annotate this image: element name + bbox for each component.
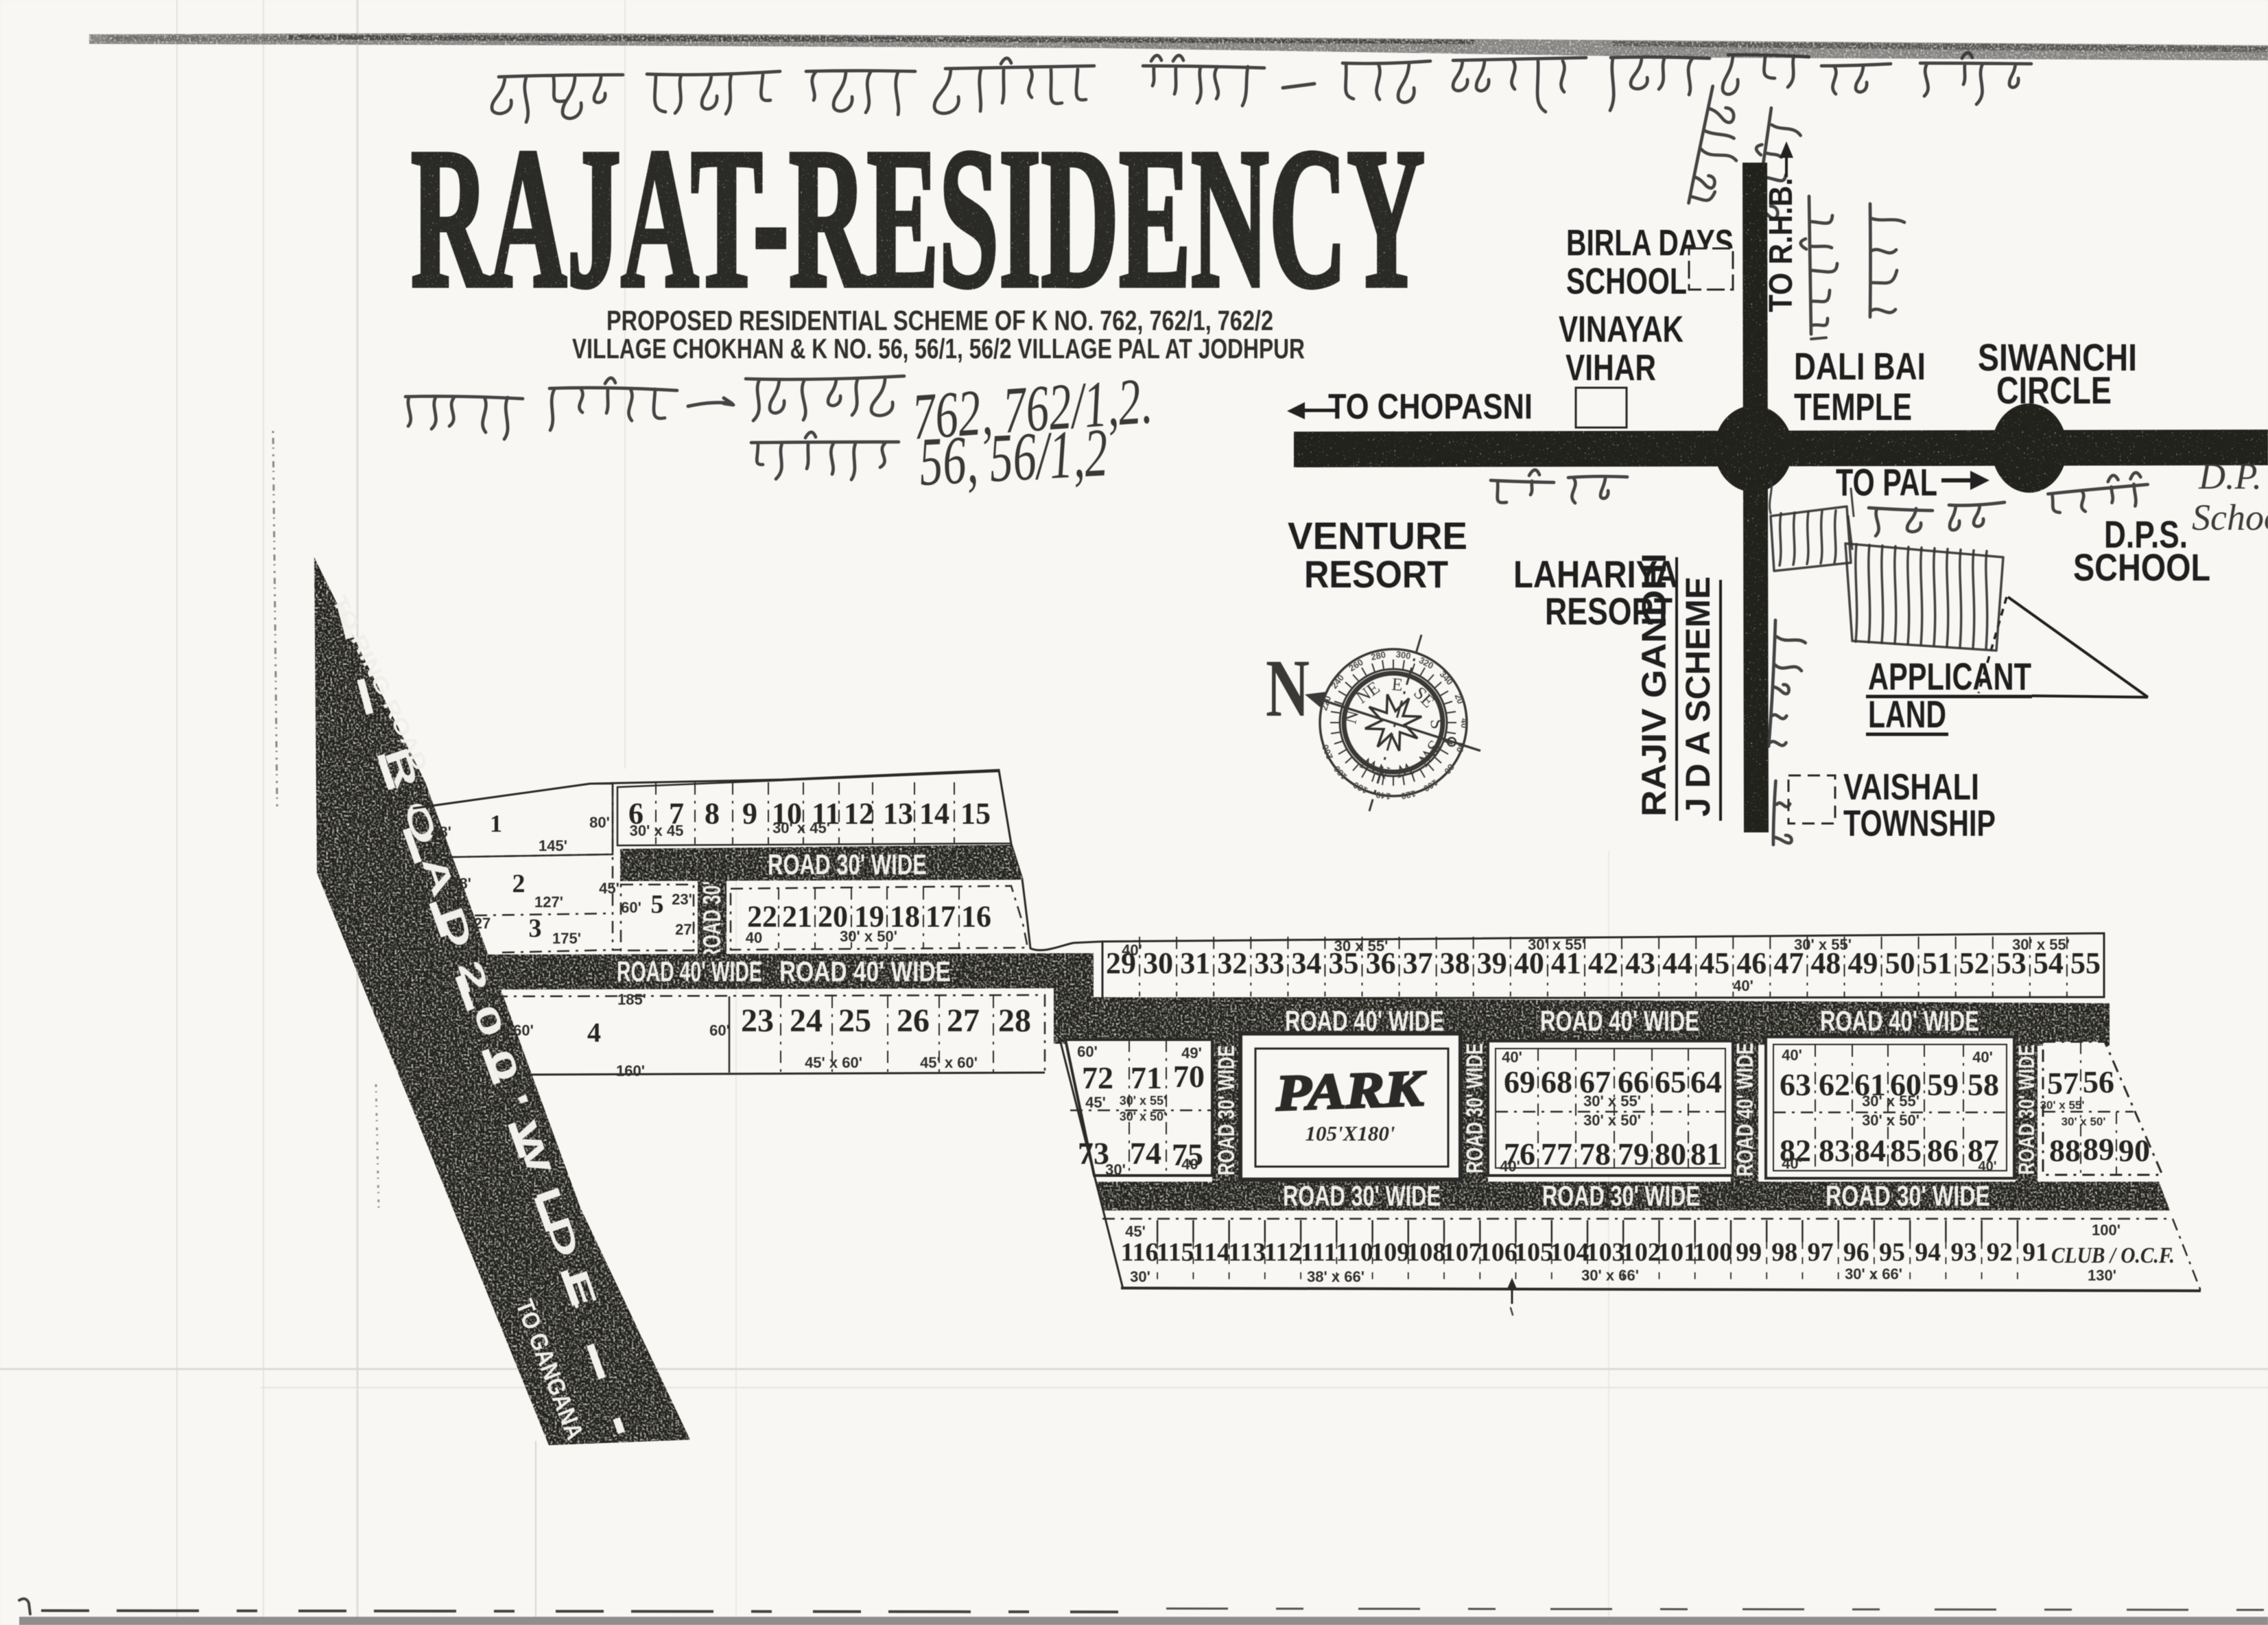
svg-text:49: 49 [1848,946,1878,980]
svg-text:114: 114 [1192,1238,1230,1267]
svg-text:30 x 55': 30 x 55' [1334,937,1389,955]
svg-text:50: 50 [1885,946,1915,980]
svg-text:ROAD 30' WIDE: ROAD 30' WIDE [1826,1180,1990,1212]
svg-text:40': 40' [1733,977,1753,994]
svg-text:60': 60' [1077,1043,1098,1060]
svg-text:DALI BAI: DALI BAI [1794,344,1926,388]
svg-text:38: 38 [1440,946,1470,980]
svg-text:26: 26 [897,1003,930,1039]
svg-text:30' x 50': 30' x 50' [1120,1110,1167,1123]
svg-text:52: 52 [1959,946,1989,980]
svg-text:80': 80' [589,814,610,831]
svg-text:ROAD 40' WIDE: ROAD 40' WIDE [1732,1043,1758,1177]
svg-text:VIHAR: VIHAR [1566,347,1656,388]
svg-text:30' x 55': 30' x 55' [1862,1092,1919,1110]
svg-text:12: 12 [844,797,874,830]
svg-text:15: 15 [960,797,991,830]
svg-text:J D A SCHEME: J D A SCHEME [1679,576,1717,817]
svg-text:TO R.H.B.: TO R.H.B. [1763,178,1799,312]
svg-text:45: 45 [1699,946,1729,980]
svg-text:105: 105 [1514,1238,1553,1267]
svg-text:92: 92 [1987,1238,2013,1267]
svg-text:30' x 55': 30' x 55' [2012,936,2070,953]
svg-text:40': 40' [1978,1159,1996,1174]
svg-text:93: 93 [1951,1238,1977,1267]
svg-text:43: 43 [1625,946,1655,980]
svg-text:13: 13 [883,797,913,830]
svg-text:73: 73 [1078,1136,1109,1171]
svg-text:16: 16 [961,900,991,933]
svg-text:D.P.: D.P. [2198,456,2262,497]
svg-text:25: 25 [838,1003,871,1039]
svg-text:28: 28 [998,1003,1031,1039]
svg-text:58: 58 [1968,1067,1999,1102]
svg-text:145': 145' [539,837,567,854]
svg-text:60': 60' [709,1022,730,1039]
svg-text:81: 81 [1690,1136,1722,1171]
svg-text:ROAD 30' WIDE: ROAD 30' WIDE [1542,1180,1700,1212]
svg-text:ROAD 40' WIDE: ROAD 40' WIDE [1820,1005,1979,1037]
svg-text:31: 31 [1180,946,1210,980]
svg-text:40': 40' [1972,1049,1993,1066]
svg-text:57: 57 [2047,1066,2079,1101]
svg-text:86: 86 [1927,1133,1959,1168]
svg-text:27': 27' [675,921,696,938]
svg-text:102: 102 [1622,1238,1661,1267]
svg-text:40': 40' [1782,1047,1802,1064]
svg-text:30' x 50': 30' x 50' [1862,1112,1919,1129]
svg-text:SCHOOL: SCHOOL [2073,546,2210,589]
svg-text:300: 300 [1395,649,1412,662]
svg-text:ROAD 30' WIDE: ROAD 30' WIDE [2014,1044,2039,1175]
svg-text:110: 110 [1336,1238,1373,1267]
svg-text:30' x 50': 30' x 50' [840,928,897,945]
svg-text:74: 74 [1130,1136,1161,1171]
svg-text:8: 8 [705,797,720,830]
svg-text:49': 49' [1181,1044,1202,1062]
svg-text:30' x 66': 30' x 66' [1845,1265,1902,1283]
svg-text:RAJAT-RESIDENCY: RAJAT-RESIDENCY [411,108,1425,329]
svg-text:62: 62 [1819,1067,1850,1102]
svg-text:ROAD 30': ROAD 30' [698,881,726,961]
svg-text:1: 1 [490,810,502,837]
svg-text:SCHOOL: SCHOOL [1566,261,1687,302]
svg-text:111: 111 [1301,1238,1337,1267]
svg-text:160': 160' [616,1062,645,1079]
svg-text:83: 83 [1819,1133,1850,1168]
svg-text:30: 30 [1143,946,1173,980]
svg-text:30': 30' [1105,1161,1126,1178]
svg-text:3: 3 [529,914,542,943]
svg-text:100': 100' [2092,1221,2121,1239]
svg-text:30' x 55': 30' x 55' [1528,936,1585,953]
svg-text:37: 37 [1403,946,1433,980]
svg-text:116: 116 [1121,1238,1159,1267]
svg-text:48': 48' [431,823,451,841]
svg-text:5: 5 [651,890,664,919]
svg-text:97: 97 [1808,1238,1834,1267]
svg-text:40': 40' [1502,1049,1522,1066]
svg-text:44: 44 [1662,946,1692,980]
svg-text:59: 59 [1927,1067,1959,1102]
svg-text:56: 56 [2083,1064,2114,1099]
svg-text:127': 127' [534,893,563,911]
svg-text:105'X180': 105'X180' [1306,1121,1395,1145]
svg-text:CLUB / O.C.F.: CLUB / O.C.F. [2051,1243,2175,1268]
svg-text:91: 91 [2022,1238,2048,1267]
svg-text:Schoo: Schoo [2192,497,2268,538]
svg-text:ROAD 30' WIDE: ROAD 30' WIDE [768,848,927,880]
svg-text:CIRCLE: CIRCLE [1996,369,2112,412]
svg-text:27: 27 [947,1003,980,1039]
svg-text:69: 69 [1504,1064,1535,1099]
svg-text:115: 115 [1157,1238,1194,1267]
svg-text:TEMPLE: TEMPLE [1794,385,1912,428]
svg-text:45': 45' [1125,1223,1146,1240]
svg-text:VAISHALI: VAISHALI [1843,767,1979,808]
svg-text:71: 71 [1131,1060,1162,1095]
svg-text:45': 45' [599,880,619,897]
svg-text:38' x 66': 38' x 66' [1307,1268,1365,1285]
svg-text:94: 94 [1915,1238,1941,1267]
svg-text:30' x 55': 30' x 55' [1583,1092,1641,1110]
svg-text:TOWNSHIP: TOWNSHIP [1843,803,1996,844]
svg-text:40': 40' [1122,942,1142,959]
svg-text:100: 100 [1693,1238,1732,1267]
svg-text:46: 46 [1736,946,1767,980]
svg-text:42: 42 [1588,946,1618,980]
svg-text:130': 130' [2088,1267,2116,1284]
svg-text:106: 106 [1478,1238,1517,1267]
svg-text:2: 2 [512,869,525,898]
svg-text:ROAD 30' WIDE: ROAD 30' WIDE [1283,1180,1441,1212]
svg-text:95: 95 [1879,1238,1905,1267]
svg-text:17: 17 [925,900,956,933]
svg-text:84: 84 [1854,1133,1886,1168]
svg-text:96: 96 [1843,1238,1869,1267]
svg-text:109: 109 [1371,1238,1410,1267]
svg-text:30': 30' [1130,1268,1150,1285]
svg-text:98: 98 [1771,1238,1797,1267]
svg-text:104: 104 [1550,1238,1589,1267]
svg-text:ROAD 40' WIDE: ROAD 40' WIDE [617,955,762,987]
svg-text:21: 21 [782,900,812,933]
svg-text:LAND: LAND [1868,692,1946,736]
svg-text:55: 55 [2070,946,2101,980]
svg-text:64: 64 [1690,1064,1722,1099]
svg-text:85: 85 [1890,1133,1922,1168]
svg-text:ROAD 30' WIDE: ROAD 30' WIDE [1214,1045,1240,1176]
svg-text:70: 70 [1173,1059,1205,1094]
svg-text:65: 65 [1655,1064,1686,1099]
svg-text:185': 185' [617,991,646,1008]
svg-text:TO CHOPASNI: TO CHOPASNI [1328,387,1533,427]
svg-text:4: 4 [587,1017,601,1048]
svg-text:PARK: PARK [1274,1060,1428,1122]
svg-text:40': 40' [1782,1155,1802,1172]
svg-text:90: 90 [2118,1133,2150,1168]
svg-text:14: 14 [919,797,949,830]
svg-text:88: 88 [2049,1133,2081,1168]
svg-text:30' x 45': 30' x 45' [772,819,830,837]
svg-text:RAJIV GANDHI: RAJIV GANDHI [1635,553,1673,817]
svg-text:72: 72 [1082,1060,1113,1095]
svg-text:ROAD 40' WIDE: ROAD 40' WIDE [1540,1005,1699,1037]
svg-text:9: 9 [742,797,757,830]
svg-text:PROPOSED RESIDENTIAL SCHEME OF: PROPOSED RESIDENTIAL SCHEME OF K NO. 762… [606,305,1273,336]
svg-text:ROAD 30' WIDE: ROAD 30' WIDE [1462,1043,1488,1173]
svg-text:60': 60' [621,899,641,916]
svg-text:N: N [1266,642,1310,734]
svg-text:30' x 66': 30' x 66' [1581,1267,1639,1284]
svg-text:60': 60' [513,1022,534,1039]
svg-text:30' x 55': 30' x 55' [2040,1099,2085,1112]
svg-text:107: 107 [1443,1238,1482,1267]
svg-text:63: 63 [1780,1067,1811,1102]
svg-text:VENTURE: VENTURE [1288,514,1467,557]
svg-text:140: 140 [1375,790,1392,802]
svg-text:RESORT: RESORT [1304,552,1448,596]
svg-text:34: 34 [1291,946,1321,980]
svg-text:99: 99 [1736,1238,1762,1267]
svg-text:27: 27 [474,915,491,932]
svg-text:32: 32 [1217,946,1247,980]
svg-text:23': 23' [672,891,692,908]
svg-text:48': 48' [451,875,471,892]
svg-text:45' x 60': 45' x 60' [805,1054,862,1071]
svg-text:112: 112 [1264,1238,1302,1267]
svg-text:51: 51 [1922,946,1952,980]
svg-text:40: 40 [1459,718,1469,728]
svg-text:33: 33 [1254,946,1284,980]
svg-text:113: 113 [1228,1238,1266,1267]
svg-text:30' x 55': 30' x 55' [1120,1094,1167,1108]
svg-text:APPLICANT: APPLICANT [1868,655,2031,698]
svg-text:89: 89 [2083,1132,2114,1167]
svg-text:78: 78 [1579,1136,1611,1171]
svg-text:77: 77 [1541,1136,1572,1171]
svg-text:VINAYAK: VINAYAK [1559,309,1684,350]
svg-text:175': 175' [552,930,581,947]
svg-text:108: 108 [1406,1238,1445,1267]
svg-text:30' x 50': 30' x 50' [1583,1112,1641,1129]
svg-text:30' x 50': 30' x 50' [2062,1115,2106,1128]
svg-text:30' x 45: 30' x 45 [630,822,684,839]
svg-text:E: E [1391,674,1404,694]
svg-text:22: 22 [747,900,777,933]
svg-text:45': 45' [1085,1094,1106,1111]
svg-text:68: 68 [1541,1064,1572,1099]
svg-text:56, 56/1,2: 56, 56/1,2 [917,414,1109,500]
svg-text:45' x 60': 45' x 60' [920,1054,978,1071]
svg-text:S: S [1426,718,1447,730]
svg-text:101: 101 [1657,1238,1697,1267]
svg-text:80: 80 [1655,1136,1686,1171]
svg-text:40': 40' [1181,1156,1202,1173]
svg-text:39: 39 [1477,946,1507,980]
svg-text:103: 103 [1586,1238,1625,1267]
svg-text:30' x 55': 30' x 55' [1794,936,1852,953]
svg-text:79: 79 [1618,1136,1649,1171]
svg-text:ROAD 40' WIDE: ROAD 40' WIDE [779,955,951,987]
svg-text:40: 40 [746,929,762,946]
svg-text:23: 23 [741,1003,774,1039]
svg-text:24: 24 [790,1003,823,1039]
svg-text:40': 40' [1500,1158,1520,1175]
svg-text:VILLAGE CHOKHAN & K NO. 56, 56: VILLAGE CHOKHAN & K NO. 56, 56/1, 56/2 V… [572,333,1305,364]
